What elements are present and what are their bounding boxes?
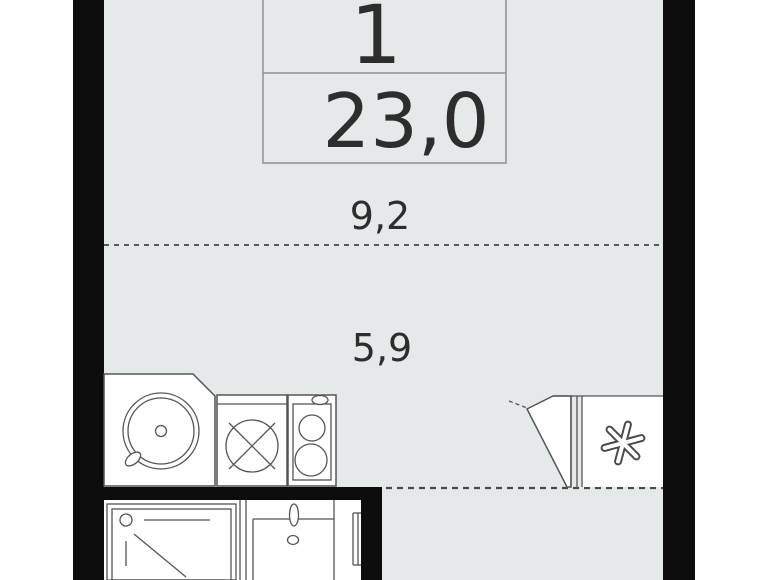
bathroom-floor <box>104 500 361 580</box>
wall-bathroom-top <box>73 487 382 500</box>
faucet-icon <box>312 396 328 405</box>
living-area-value: 9,2 <box>350 194 410 238</box>
floor-plan-screenshot: 1 23,0 9,2 5,9 <box>0 0 780 580</box>
basin-faucet-icon <box>290 504 299 526</box>
total-area-value: 23,0 <box>323 77 490 165</box>
wall-bathroom-right <box>361 487 382 580</box>
floor-plan: 1 23,0 9,2 5,9 <box>0 0 780 580</box>
kitchen-area-value: 5,9 <box>352 326 412 370</box>
bathroom <box>104 500 361 580</box>
apartment-number: 1 <box>350 0 402 83</box>
basin-drain-icon <box>288 536 299 545</box>
wall-right <box>663 0 695 580</box>
